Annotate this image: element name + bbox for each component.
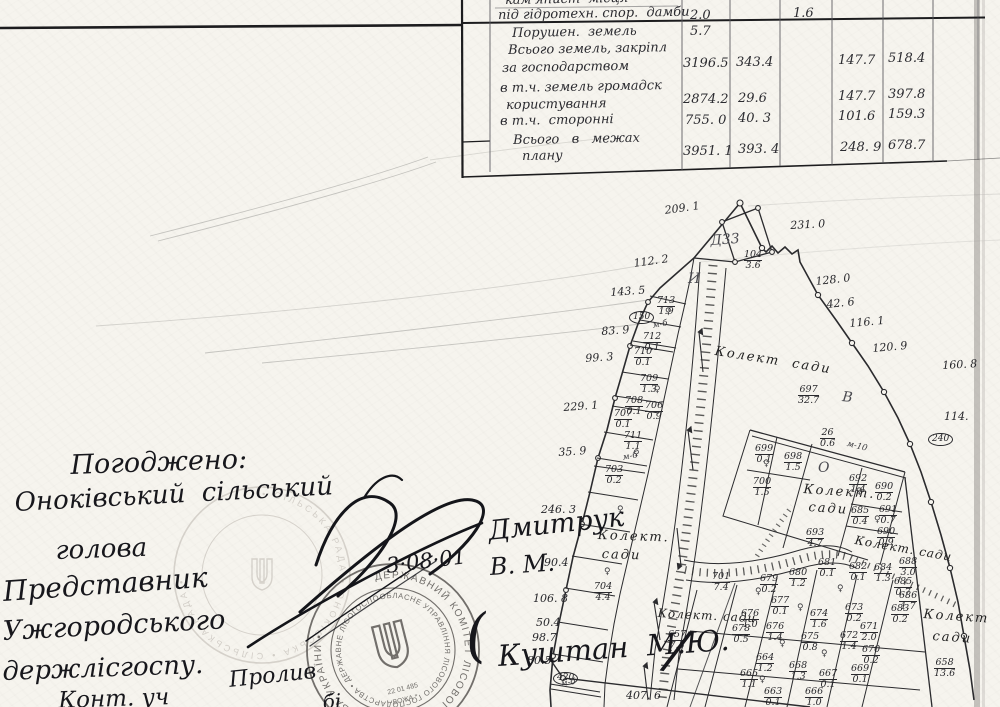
hw-clipped-fragment: бі bbox=[322, 691, 342, 707]
scanned-plan-page: кам'янист місцяпід гідротехн. спор. дамб… bbox=[0, 0, 1000, 707]
hw-dmytruk-initials: В. М. bbox=[489, 550, 556, 578]
hw-agreed: Погоджено: bbox=[70, 446, 247, 479]
signatures bbox=[0, 0, 1000, 707]
hw-clipped-bottom-left: Конт. уч bbox=[58, 686, 170, 707]
hw-village-head-2: голова bbox=[55, 535, 147, 564]
hw-forestry: держлісгоспу. bbox=[2, 652, 204, 685]
